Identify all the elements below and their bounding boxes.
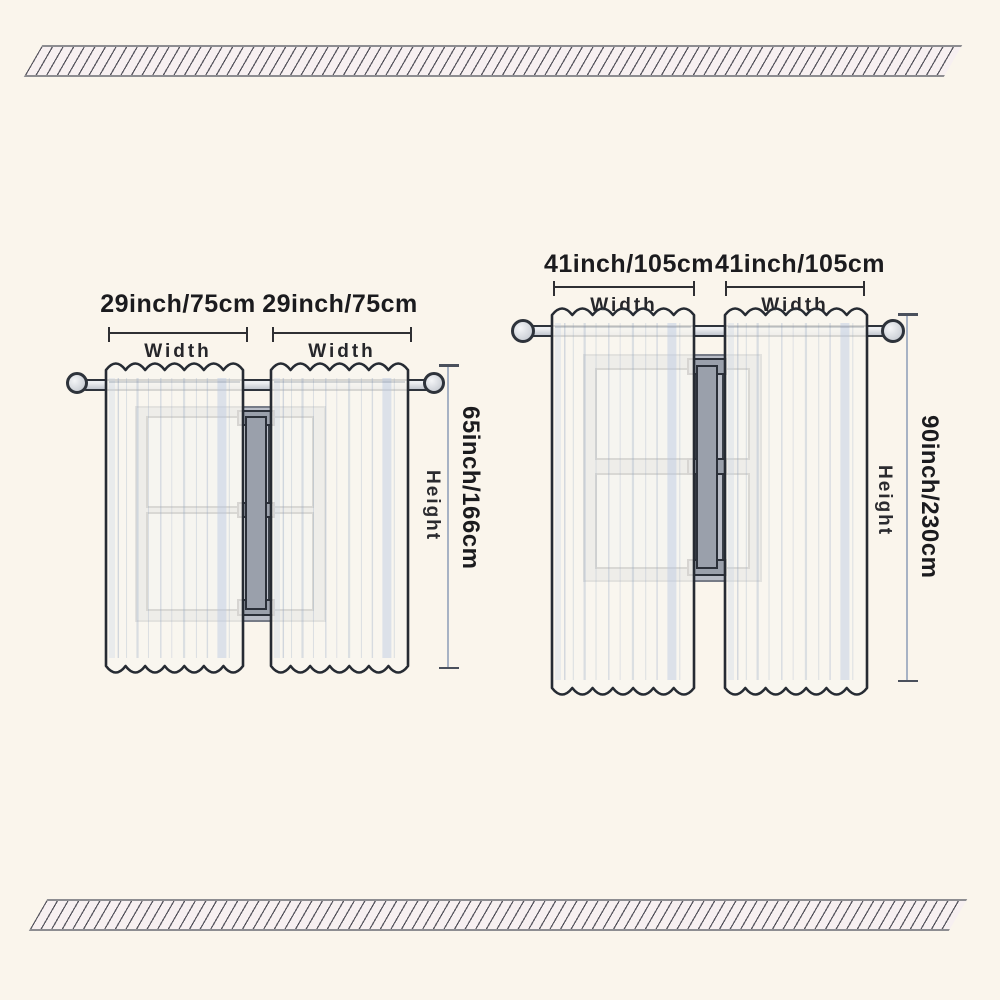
height-dimension-line [906,313,908,682]
hatch-band-top [24,45,962,77]
panel-height-value: 90inch/230cm [915,415,943,578]
rod-finial-left [66,372,88,394]
width-dimension-line [272,332,412,334]
panel-height-value: 65inch/166cm [456,406,484,569]
curtain-size-diagram: 29inch/75cm 29inch/75cm Width Width 65in… [0,0,1000,1000]
width-dimension-line [553,286,695,288]
hatch-pattern [30,901,966,929]
hatch-band-bottom [29,899,967,931]
width-dimension-line [725,286,865,288]
panel-width-value: 29inch/75cm [260,291,420,319]
curtain-panel-left [103,358,246,681]
rod-finial-right [881,319,905,343]
height-label: Height [421,470,443,541]
hatch-pattern [25,47,961,75]
panel-width-value: 29inch/75cm [98,291,258,319]
curtain-panel-right [722,303,870,703]
height-label: Height [873,465,895,536]
window-mullion [245,416,267,610]
height-dimension-line [447,364,449,669]
width-dimension-line [108,332,248,334]
rod-finial-left [511,319,535,343]
curtain-panel-left [549,303,697,703]
panel-width-value: 41inch/105cm [544,251,704,279]
rod-finial-right [423,372,445,394]
panel-width-value: 41inch/105cm [715,251,875,279]
window-mullion [696,365,718,569]
curtain-panel-right [268,358,411,681]
